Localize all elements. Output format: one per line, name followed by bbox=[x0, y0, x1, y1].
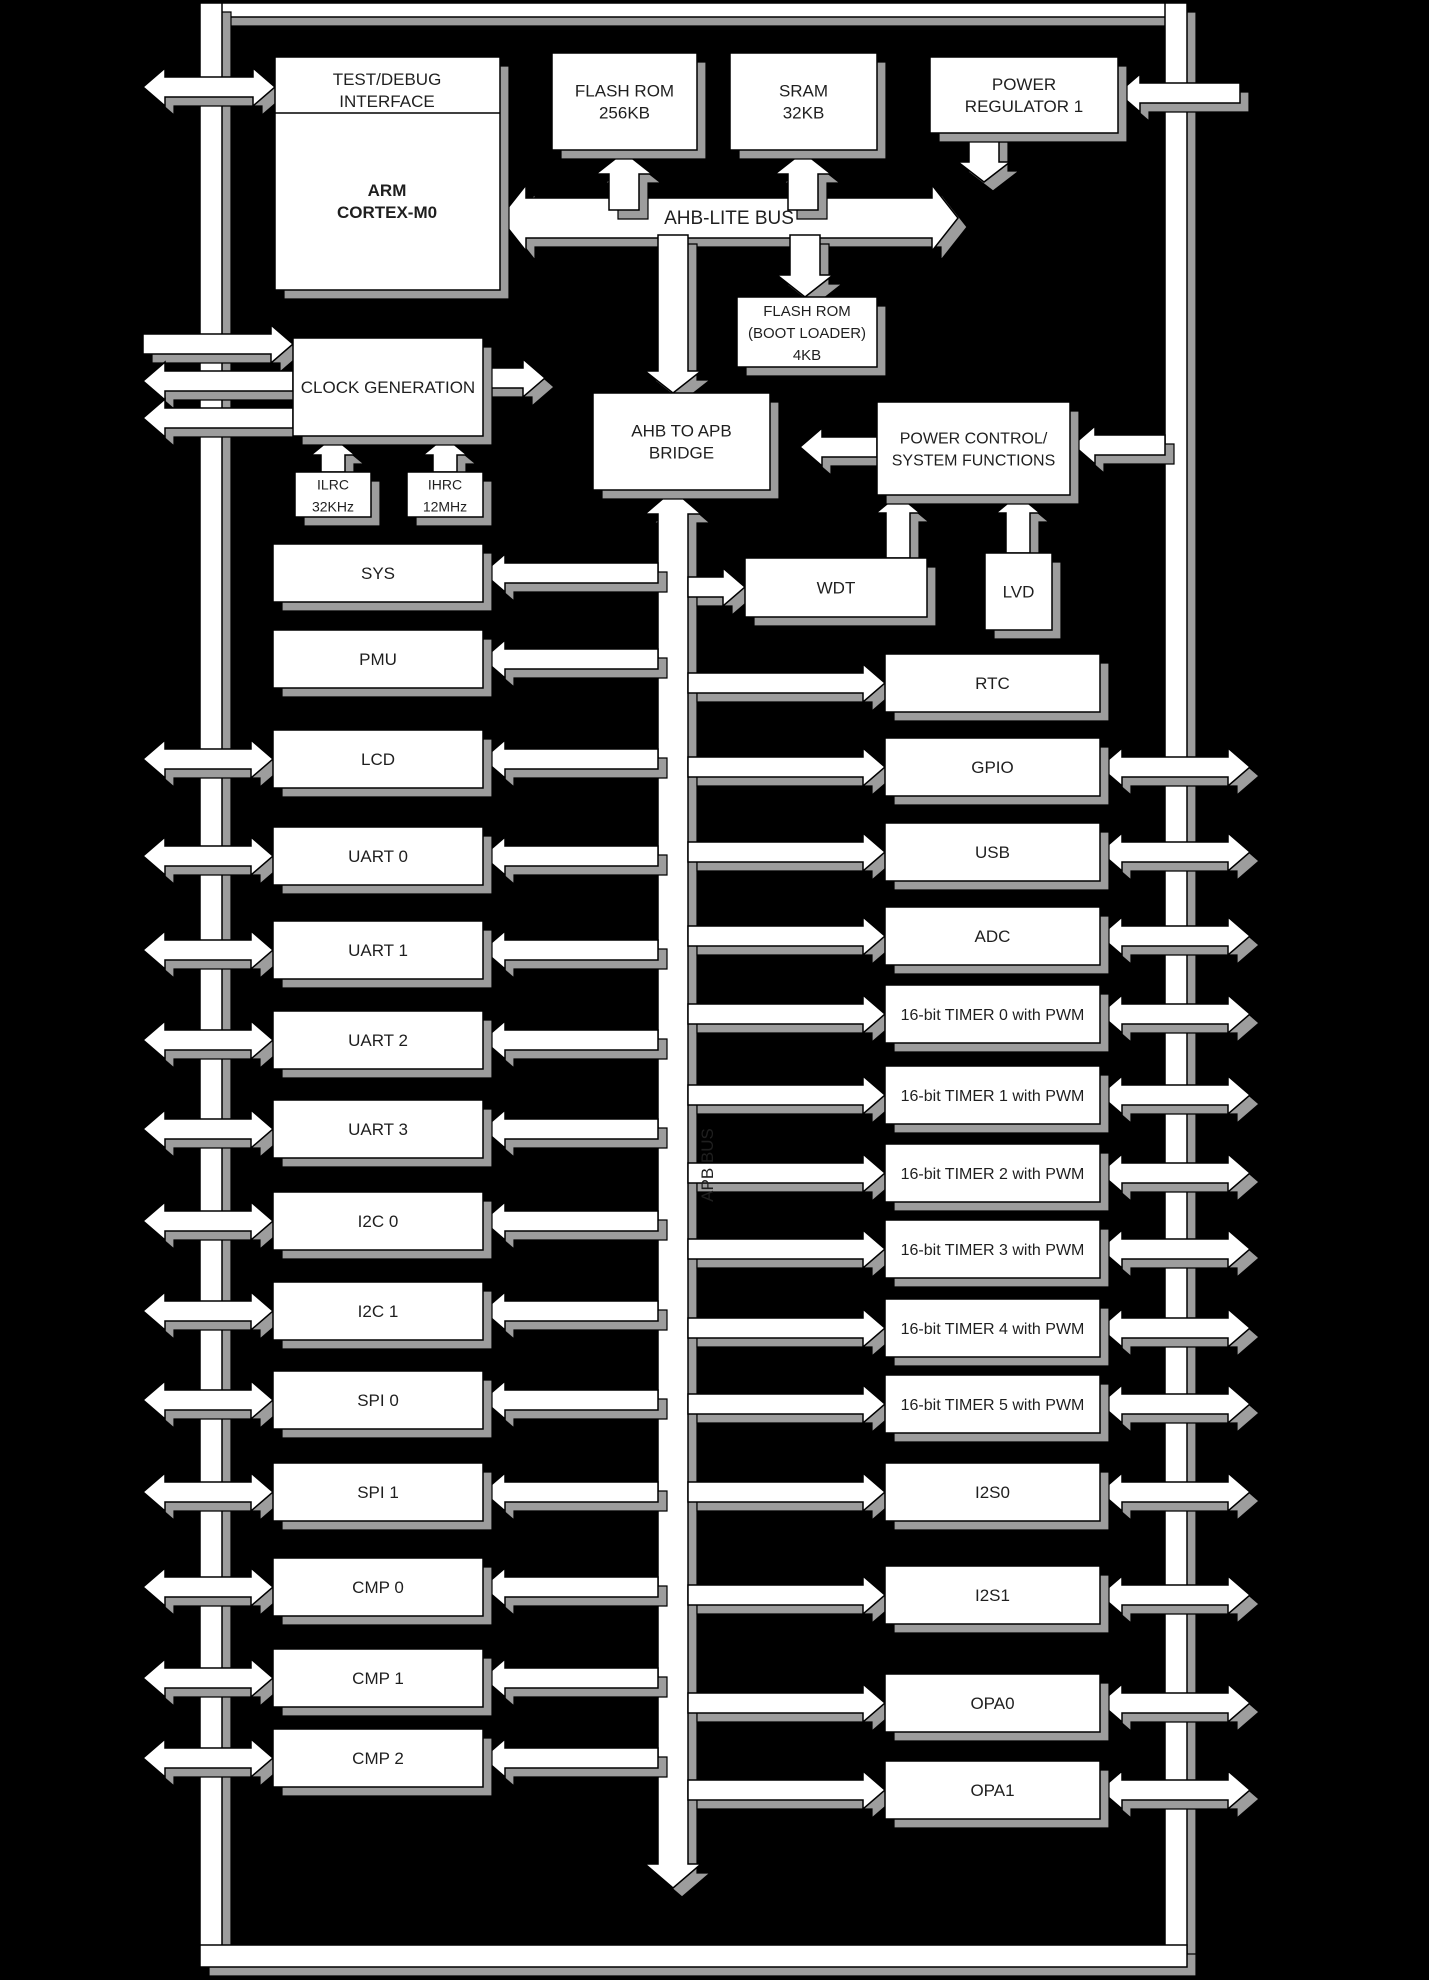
box-wdt-label-0: WDT bbox=[817, 579, 856, 598]
box-adc-label-0: ADC bbox=[975, 927, 1011, 946]
box-sys-label-0: SYS bbox=[361, 564, 395, 583]
box-i2s0-label-0: I2S0 bbox=[975, 1483, 1010, 1502]
arm-label-1: CORTEX-M0 bbox=[337, 203, 437, 222]
box-uart-3-label-0: UART 3 bbox=[348, 1120, 408, 1139]
box-sram-label-1: 32KB bbox=[783, 104, 825, 123]
box-flash-rom-label-1: 256KB bbox=[599, 104, 650, 123]
chip-border-top bbox=[200, 3, 1187, 17]
box-power-control-label-1: SYSTEM FUNCTIONS bbox=[892, 453, 1056, 470]
chip-border-right bbox=[1165, 3, 1187, 1967]
mcu-block-diagram: SYSPMULCDUART 0UART 1UART 2UART 3I2C 0I2… bbox=[0, 0, 1429, 1980]
ahb-bus-label: AHB-LITE BUS bbox=[664, 208, 794, 229]
box-16-bit-timer-1-with-pwm-label-0: 16-bit TIMER 1 with PWM bbox=[901, 1088, 1085, 1105]
box-boot-rom-label-0: FLASH ROM bbox=[763, 303, 851, 320]
box-ihrc-label-0: IHRC bbox=[428, 477, 462, 493]
box-spi-1-label-0: SPI 1 bbox=[357, 1483, 399, 1502]
box-ahb-apb-bridge-label-1: BRIDGE bbox=[649, 444, 714, 463]
box-cmp-1-label-0: CMP 1 bbox=[352, 1669, 404, 1688]
apb-bus-label: APB BUS bbox=[698, 1128, 717, 1202]
box-gpio-label-0: GPIO bbox=[971, 758, 1014, 777]
box-ihrc-label-1: 12MHz bbox=[423, 499, 467, 515]
box-power-control bbox=[877, 402, 1070, 495]
box-power-regulator-label-1: REGULATOR 1 bbox=[965, 97, 1083, 116]
box-opa1-label-0: OPA1 bbox=[970, 1781, 1014, 1800]
box-i2s1-label-0: I2S1 bbox=[975, 1586, 1010, 1605]
box-16-bit-timer-5-with-pwm-label-0: 16-bit TIMER 5 with PWM bbox=[901, 1397, 1085, 1414]
box-16-bit-timer-3-with-pwm-label-0: 16-bit TIMER 3 with PWM bbox=[901, 1242, 1085, 1259]
arm-label-0: ARM bbox=[368, 181, 407, 200]
box-16-bit-timer-4-with-pwm-label-0: 16-bit TIMER 4 with PWM bbox=[901, 1321, 1085, 1338]
box-ilrc-label-0: ILRC bbox=[317, 477, 349, 493]
box-16-bit-timer-2-with-pwm-label-0: 16-bit TIMER 2 with PWM bbox=[901, 1166, 1085, 1183]
box-spi-0-label-0: SPI 0 bbox=[357, 1391, 399, 1410]
box-ilrc-label-1: 32KHz bbox=[312, 499, 354, 515]
box-i2c-0-label-0: I2C 0 bbox=[358, 1212, 399, 1231]
box-cmp-0-label-0: CMP 0 bbox=[352, 1578, 404, 1597]
box-uart-0-label-0: UART 0 bbox=[348, 847, 408, 866]
test-debug-label-1: INTERFACE bbox=[339, 92, 434, 111]
box-opa0-label-0: OPA0 bbox=[970, 1694, 1014, 1713]
box-power-regulator bbox=[930, 57, 1118, 133]
box-ahb-apb-bridge-label-0: AHB TO APB bbox=[631, 422, 731, 441]
box-pmu-label-0: PMU bbox=[359, 650, 397, 669]
box-ahb-apb-bridge bbox=[593, 393, 770, 490]
box-cmp-2-label-0: CMP 2 bbox=[352, 1749, 404, 1768]
box-boot-rom-label-1: (BOOT LOADER) bbox=[748, 325, 866, 342]
box-flash-rom bbox=[552, 53, 697, 150]
box-16-bit-timer-0-with-pwm-label-0: 16-bit TIMER 0 with PWM bbox=[901, 1007, 1085, 1024]
box-flash-rom-label-0: FLASH ROM bbox=[575, 82, 674, 101]
box-lvd-label-0: LVD bbox=[1003, 583, 1035, 602]
box-power-control-label-0: POWER CONTROL/ bbox=[900, 431, 1048, 448]
box-i2c-1-label-0: I2C 1 bbox=[358, 1302, 399, 1321]
box-rtc-label-0: RTC bbox=[975, 674, 1010, 693]
chip-border-bottom bbox=[200, 1945, 1187, 1967]
box-uart-1-label-0: UART 1 bbox=[348, 941, 408, 960]
test-debug-label-0: TEST/DEBUG bbox=[333, 70, 442, 89]
box-usb-label-0: USB bbox=[975, 843, 1010, 862]
box-power-regulator-label-0: POWER bbox=[992, 75, 1056, 94]
box-sram bbox=[730, 53, 877, 150]
box-clock-generation-label-0: CLOCK GENERATION bbox=[301, 378, 475, 397]
box-uart-2-label-0: UART 2 bbox=[348, 1031, 408, 1050]
box-boot-rom-label-2: 4KB bbox=[793, 347, 821, 364]
box-sram-label-0: SRAM bbox=[779, 82, 828, 101]
box-lcd-label-0: LCD bbox=[361, 750, 395, 769]
